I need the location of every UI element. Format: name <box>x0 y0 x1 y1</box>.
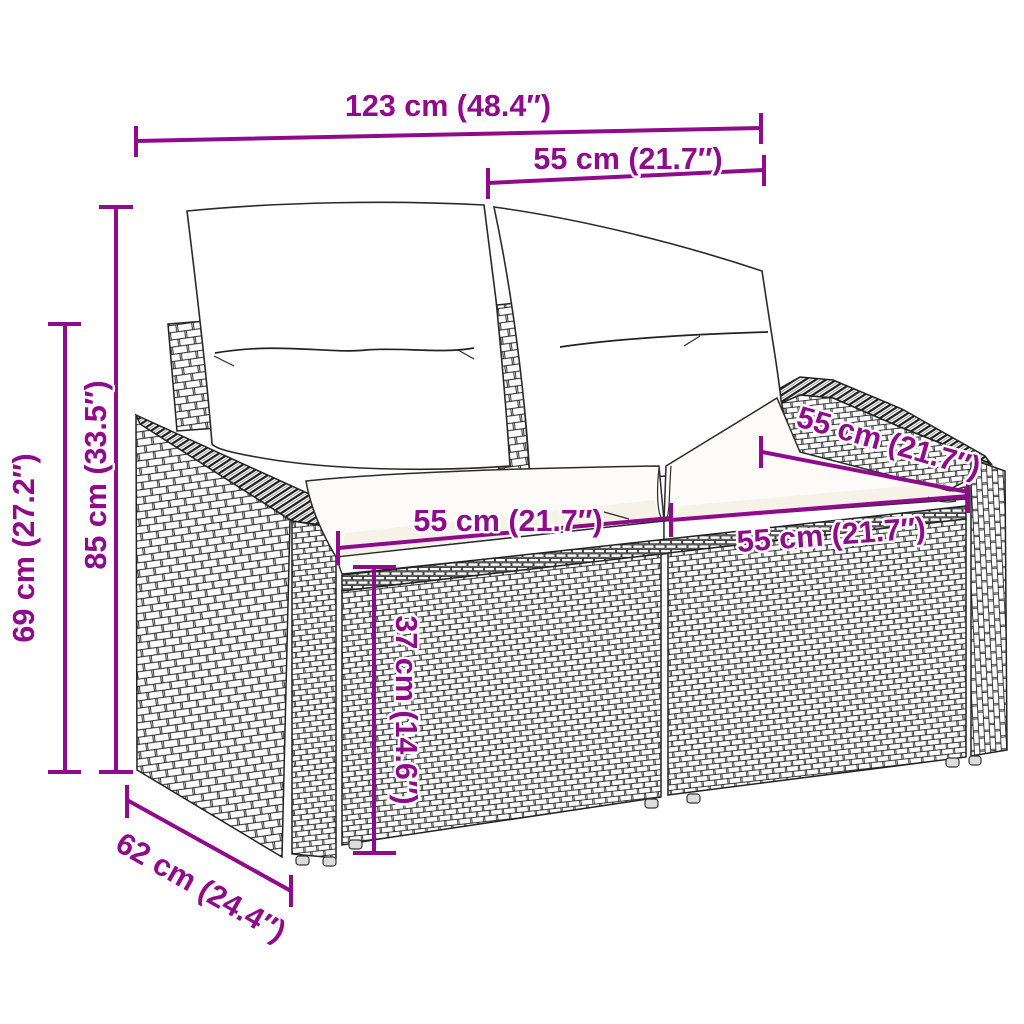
svg-text:123 cm (48.4″): 123 cm (48.4″) <box>345 89 551 123</box>
svg-text:55 cm (21.7″): 55 cm (21.7″) <box>533 142 722 176</box>
svg-text:85 cm (33.5″): 85 cm (33.5″) <box>79 380 113 569</box>
svg-text:55 cm (21.7″): 55 cm (21.7″) <box>413 504 602 538</box>
svg-text:37 cm (14.6″): 37 cm (14.6″) <box>389 615 423 804</box>
svg-text:69 cm (27.2″): 69 cm (27.2″) <box>7 453 41 642</box>
